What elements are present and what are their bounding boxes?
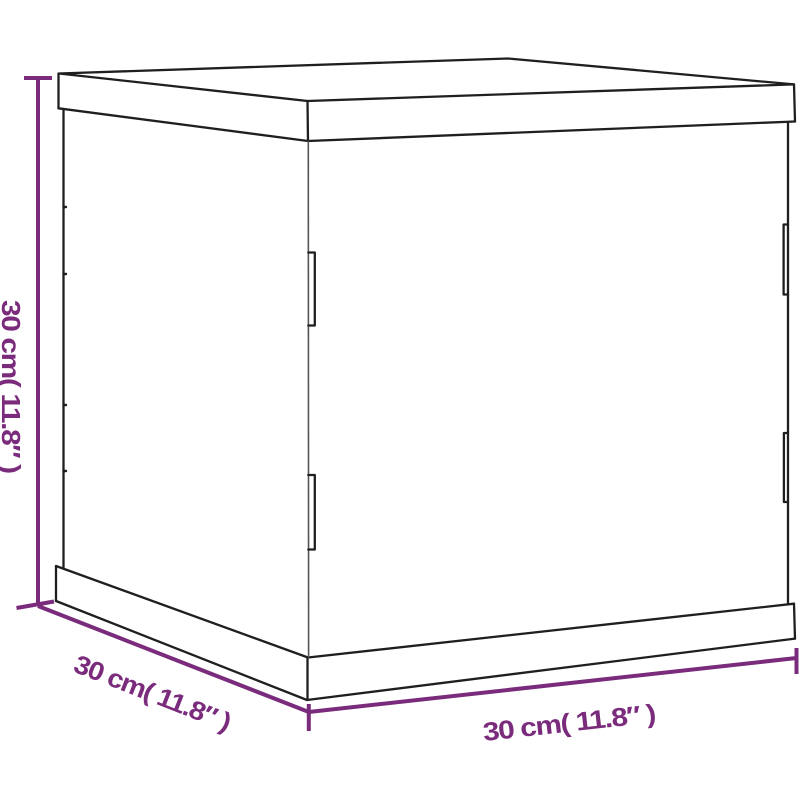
svg-text:30 cm( 11.8″ ): 30 cm( 11.8″ ) <box>0 300 25 473</box>
